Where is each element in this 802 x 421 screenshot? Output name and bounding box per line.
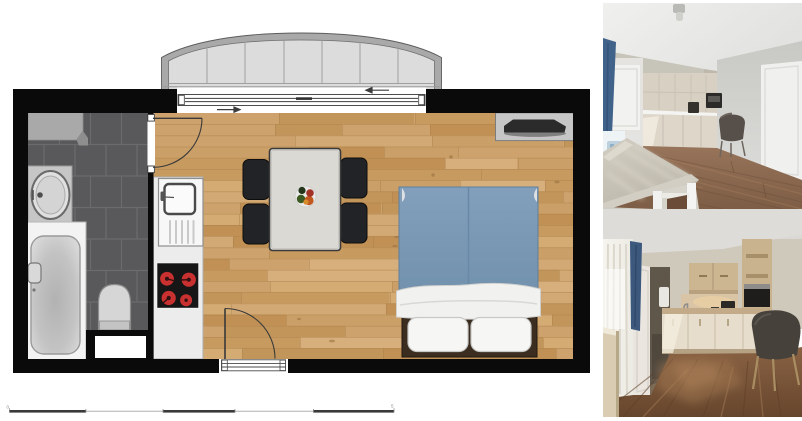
svg-text:5: 5 <box>391 404 394 409</box>
